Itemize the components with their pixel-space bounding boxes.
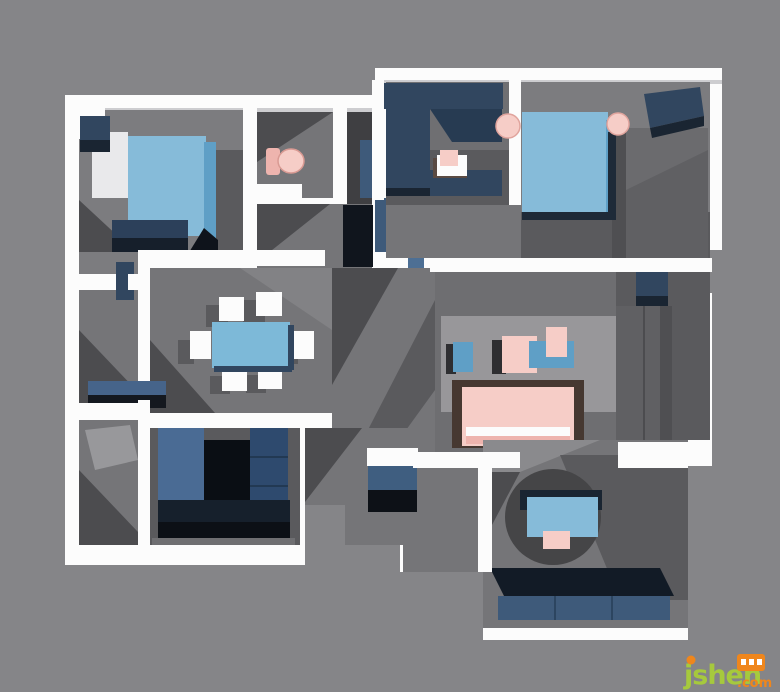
- watermark-j-dot: [687, 656, 696, 665]
- tv-cabinet: [616, 268, 710, 458]
- nightstand: [80, 116, 110, 152]
- master-bed-edge-bottom: [522, 212, 612, 220]
- counter-bottom-top: [158, 500, 290, 522]
- round-stool-left: [496, 114, 520, 138]
- dining-table-edge-bottom: [214, 366, 292, 372]
- tall-cabinet-front: [343, 205, 373, 267]
- wall-study-master: [509, 68, 521, 112]
- wall-study-west: [372, 80, 384, 200]
- bed-side-face: [204, 142, 216, 240]
- bedroom-top-left: [65, 95, 243, 274]
- master-approach-floor: [386, 205, 521, 258]
- sideboard-top: [88, 381, 166, 397]
- wall-bath-south: [256, 184, 302, 198]
- wall-storage-north-a: [79, 274, 104, 290]
- badge-glyph: [749, 659, 754, 665]
- toilet: [266, 148, 304, 175]
- balcony-bottom-right: [483, 440, 688, 628]
- sofa-arm-front: [386, 188, 430, 196]
- wall-master-south-left: [430, 258, 548, 272]
- dining-chair: [219, 297, 244, 321]
- wall-balcony-north-right: [618, 442, 688, 468]
- wall-living-balcony: [413, 452, 520, 468]
- badge-glyph: [757, 659, 762, 665]
- floorplan-render: jsheh .com: [0, 0, 780, 692]
- watermark-badge-glyphs: [741, 659, 762, 665]
- wall-bath-divider: [333, 106, 347, 152]
- left-balcony: [79, 420, 138, 545]
- wall-bed-bath: [243, 106, 257, 198]
- daybed-top: [490, 568, 674, 596]
- wall-kitchen-west: [138, 400, 150, 545]
- dining-table-top: [212, 322, 290, 368]
- daybed: [490, 568, 674, 620]
- living-room: [435, 268, 710, 458]
- dining-chair: [294, 331, 314, 359]
- wall-entry-balcony: [478, 455, 492, 572]
- sofa-back: [383, 83, 503, 109]
- pink-chair: [440, 150, 458, 166]
- foot-bench-front: [112, 238, 188, 252]
- kitchen: [150, 428, 300, 545]
- shoe-cabinet: [368, 466, 417, 512]
- side-table: [446, 342, 473, 374]
- master-wardrobe: [612, 128, 708, 258]
- coffee-tray-pink: [546, 327, 567, 357]
- master-mattress: [522, 112, 608, 214]
- dining-chair: [256, 292, 282, 316]
- wall-master-south-right: [578, 258, 712, 272]
- study-room: [383, 82, 509, 205]
- counter-interior: [204, 440, 250, 504]
- foot-bench-top: [112, 220, 188, 238]
- sofa-base-strip: [466, 427, 570, 436]
- counter-kick: [152, 538, 295, 545]
- dining-room: [150, 268, 332, 413]
- watermark: jsheh .com: [683, 654, 772, 691]
- badge-glyph: [741, 659, 746, 665]
- tv-cabinet-side: [660, 306, 672, 458]
- shoe-cabinet-front: [368, 490, 417, 512]
- desk-chair: [543, 531, 570, 549]
- shower-door: [360, 140, 372, 198]
- wall-kitchen-north-left: [150, 413, 228, 428]
- wall-storage-balcony: [79, 403, 150, 420]
- master-bed-edge-right: [608, 132, 616, 220]
- watermark-tld-text: .com: [737, 676, 772, 691]
- sofa: [452, 380, 584, 448]
- daybed-front: [498, 596, 670, 620]
- dining-table: [212, 322, 294, 372]
- toilet-bowl: [278, 149, 304, 173]
- dining-chair: [190, 331, 211, 359]
- nightstand-front: [80, 140, 110, 152]
- side-table-top: [453, 342, 473, 372]
- shoe-cabinet-top: [368, 466, 417, 490]
- master-bed: [522, 112, 616, 220]
- counter-bottom-front: [158, 522, 290, 538]
- wall-bedroom-south: [138, 250, 325, 266]
- nightstand-top: [80, 116, 110, 142]
- wall-storage-north-b: [128, 274, 150, 290]
- floorplan-svg: jsheh .com: [0, 0, 780, 692]
- entry-stub-wall: [367, 448, 418, 466]
- wall-kitchen-north-right: [258, 413, 308, 428]
- round-stool-right: [607, 113, 629, 135]
- dining-table-edge-right: [288, 325, 294, 370]
